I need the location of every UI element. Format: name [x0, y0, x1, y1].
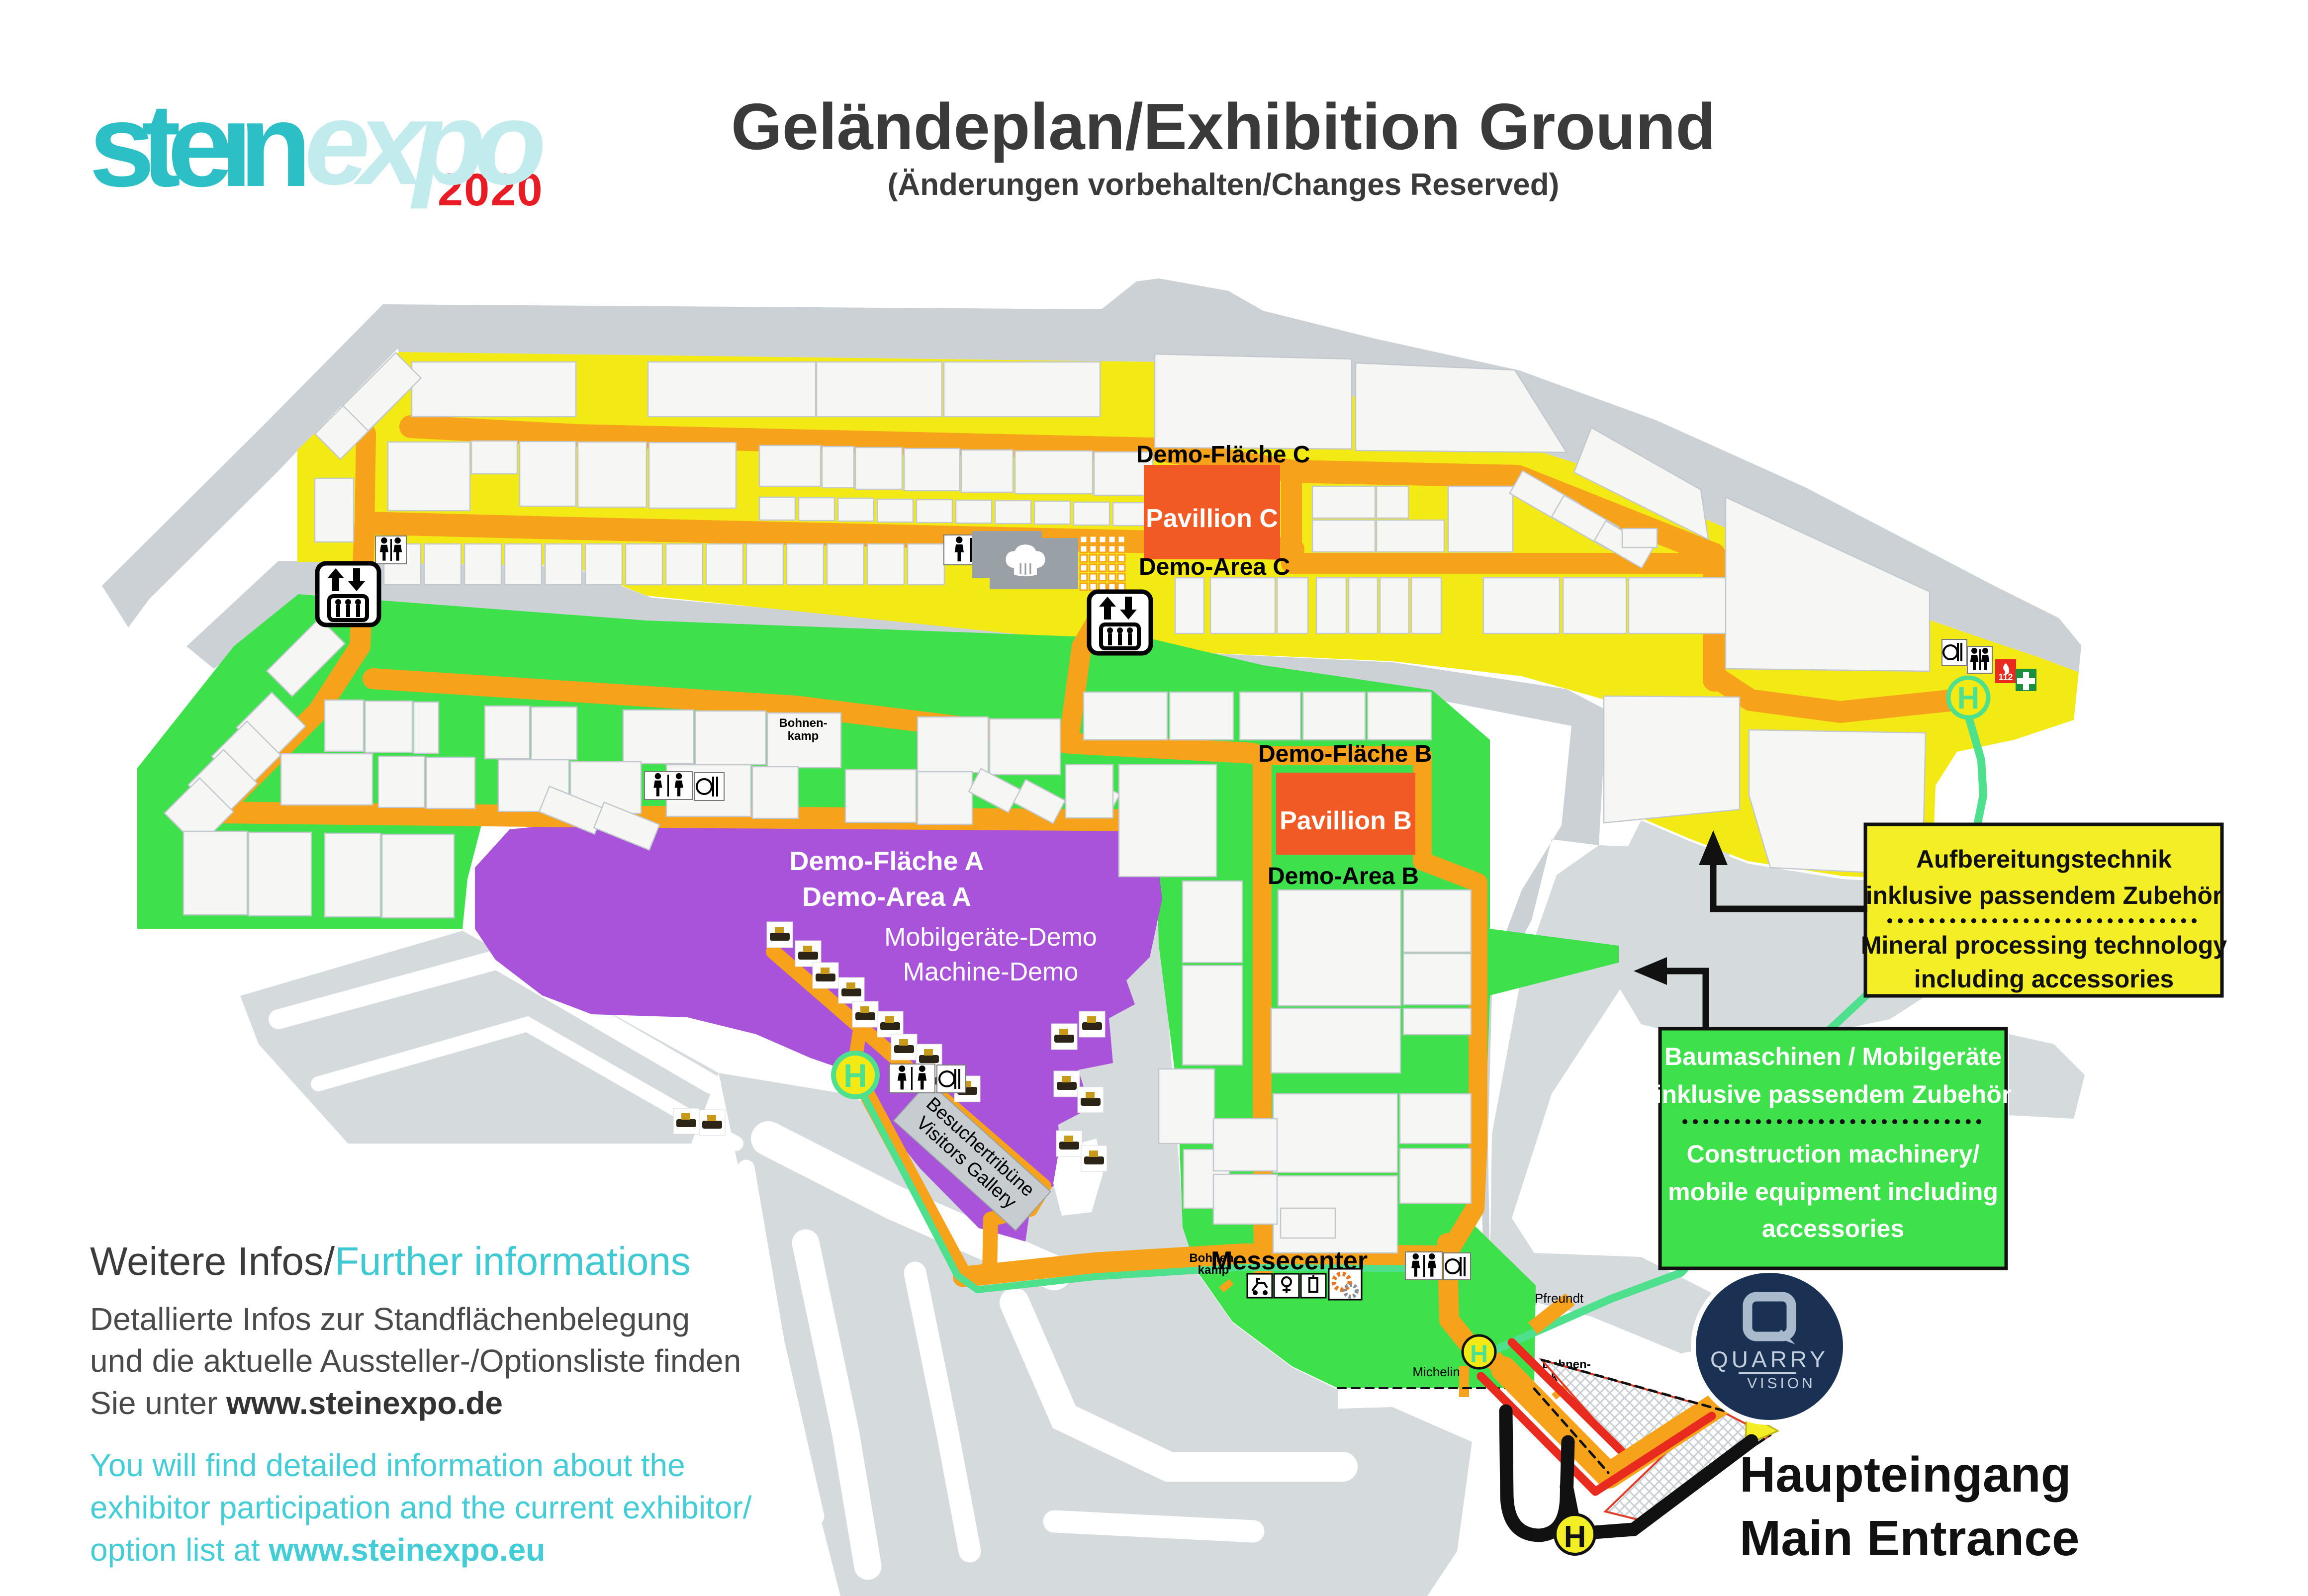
- svg-text:kamp: kamp: [788, 729, 819, 743]
- svg-text:Demo-Area A: Demo-Area A: [802, 882, 971, 912]
- svg-text:Mineral processing technology: Mineral processing technology: [1861, 931, 2227, 959]
- svg-text:Machine-Demo: Machine-Demo: [903, 958, 1079, 986]
- svg-text:VISION: VISION: [1747, 1375, 1816, 1392]
- svg-text:including accessories: including accessories: [1914, 965, 2174, 993]
- svg-text:expo: expo: [304, 78, 543, 209]
- svg-text:Mobilgeräte-Demo: Mobilgeräte-Demo: [884, 923, 1097, 952]
- svg-text:Demo-Fläche C: Demo-Fläche C: [1136, 442, 1310, 468]
- svg-text:Construction machinery/: Construction machinery/: [1687, 1140, 1980, 1168]
- svg-text:Sie unter www.steinexpo.de: Sie unter www.steinexpo.de: [90, 1385, 503, 1421]
- svg-text:und die aktuelle Aussteller-/O: und die aktuelle Aussteller-/Optionslist…: [90, 1343, 741, 1379]
- svg-text:Geländeplan/Exhibition Ground: Geländeplan/Exhibition Ground: [731, 90, 1716, 163]
- svg-text:kamp: kamp: [1198, 1263, 1229, 1277]
- svg-text:H: H: [1470, 1340, 1488, 1368]
- svg-text:Aufbereitungstechnik: Aufbereitungstechnik: [1916, 845, 2172, 873]
- svg-text:H: H: [843, 1057, 867, 1094]
- svg-text:Michelin: Michelin: [1412, 1364, 1460, 1379]
- svg-text:inklusive passendem Zubehör: inklusive passendem Zubehör: [1655, 1080, 2012, 1108]
- svg-text:Weitere Infos/Further informat: Weitere Infos/Further informations: [90, 1239, 691, 1283]
- svg-text:steın: steın: [89, 80, 304, 211]
- svg-text:option list at www.steinexpo.e: option list at www.steinexpo.eu: [90, 1532, 545, 1568]
- svg-text:H: H: [1957, 681, 1980, 715]
- svg-text:Baumaschinen / Mobilgeräte: Baumaschinen / Mobilgeräte: [1664, 1043, 2002, 1070]
- svg-text:(Änderungen vorbehalten/Change: (Änderungen vorbehalten/Changes Reserved…: [888, 168, 1560, 202]
- svg-text:mobile equipment including: mobile equipment including: [1668, 1178, 1998, 1206]
- svg-text:Demo-Area C: Demo-Area C: [1139, 554, 1290, 580]
- svg-text:Pavillion B: Pavillion B: [1280, 806, 1412, 835]
- svg-text:You will find detailed informa: You will find detailed information about…: [90, 1447, 685, 1483]
- svg-text:Bohnen-: Bohnen-: [779, 716, 827, 730]
- svg-text:QUARRY: QUARRY: [1710, 1346, 1829, 1372]
- svg-text:H: H: [1564, 1520, 1586, 1554]
- svg-text:Haupteingang: Haupteingang: [1740, 1447, 2071, 1503]
- svg-text:inklusive passendem Zubehör: inklusive passendem Zubehör: [1866, 882, 2222, 909]
- svg-text:Pfreundt: Pfreundt: [1535, 1291, 1584, 1306]
- svg-text:Main Entrance: Main Entrance: [1740, 1510, 2080, 1566]
- svg-text:Demo-Area B: Demo-Area B: [1268, 863, 1419, 889]
- svg-text:Bohnen-: Bohnen-: [1189, 1251, 1237, 1265]
- svg-text:Demo-Fläche A: Demo-Fläche A: [789, 846, 984, 876]
- svg-text:Pavillion C: Pavillion C: [1146, 504, 1278, 533]
- svg-text:exhibitor participation and th: exhibitor participation and the current …: [90, 1490, 752, 1525]
- svg-text:Detallierte Infos zur Standflä: Detallierte Infos zur Standflächenbelegu…: [90, 1301, 690, 1337]
- svg-text:Demo-Fläche B: Demo-Fläche B: [1258, 741, 1432, 767]
- svg-text:accessories: accessories: [1762, 1215, 1904, 1242]
